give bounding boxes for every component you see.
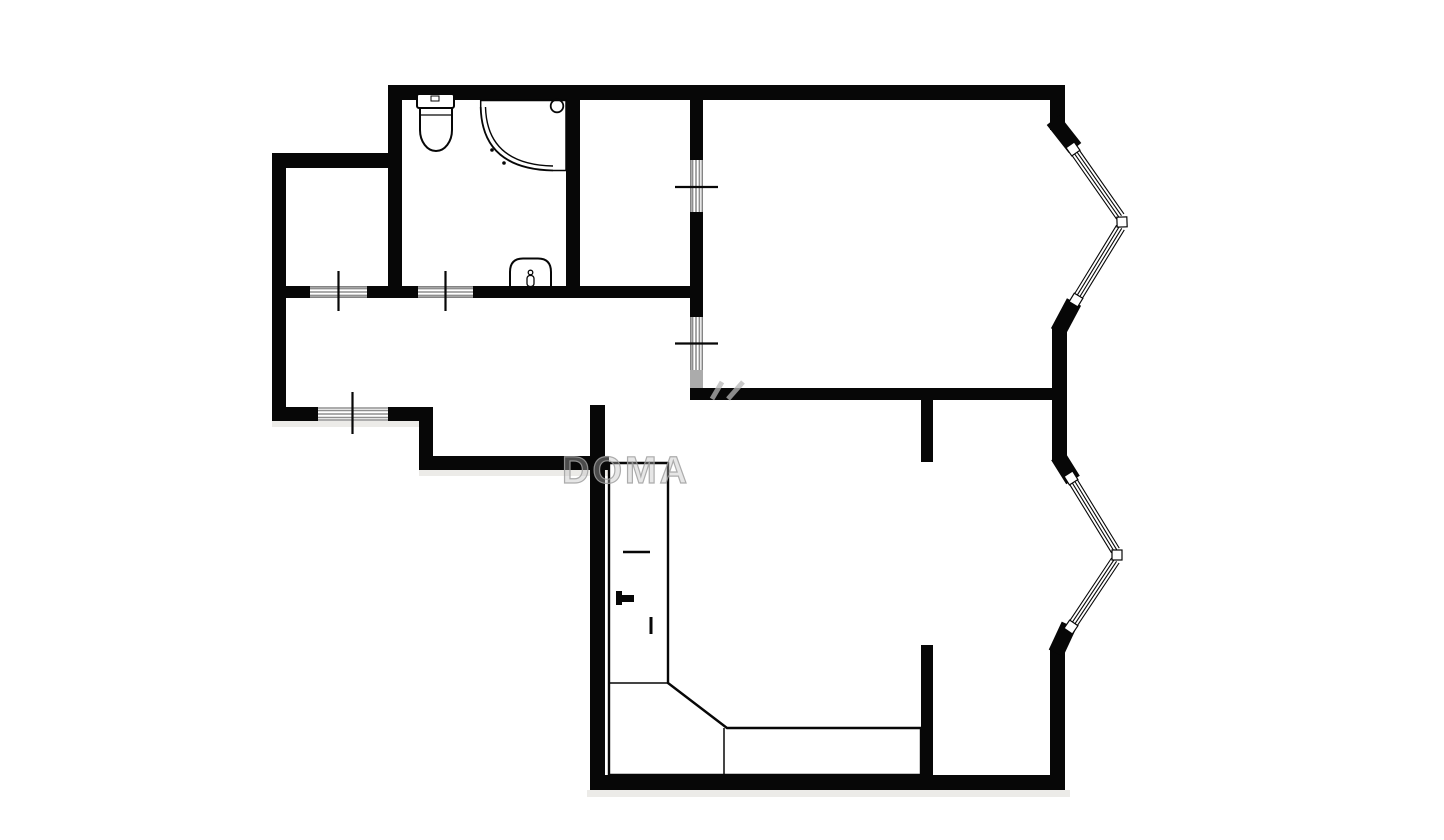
wall-mid-horizontal [367,286,418,298]
shower-door-inner-arc [486,107,554,166]
wall-mid-horizontal [473,286,703,298]
shower-door-outer-arc [481,107,553,171]
wall-bottom [590,775,1065,790]
washbasin-icon [510,259,551,288]
wall-bedroom-left [690,85,703,160]
bay-window-bottom [1064,471,1122,634]
wall-top [388,85,1065,100]
shower-drain [551,100,564,113]
shower-door-handle [502,161,506,165]
wall-living-partition-lower [921,645,933,785]
tap-spout [622,595,634,602]
wall-hall-bottom-upper [272,407,318,421]
wall-right-bottom [1050,648,1065,790]
wall-hall-bottom-lower [419,456,609,470]
sink-basin [510,259,551,288]
window-glazing [1069,558,1119,627]
wall-bedroom-living-divider [690,388,1062,400]
wall-faded-by-watermark [690,370,703,388]
tap-stem [616,591,622,605]
wall-bathroom-right [566,85,580,298]
door-opening-bedroom-lower [675,317,718,370]
door-opening-hall [318,392,388,434]
bay-window-top [1066,142,1127,307]
window-post [1112,550,1122,560]
shadow-hall-lower [419,470,611,476]
wall-bedroom-left [690,212,703,317]
shadow-bottom [587,790,1070,797]
counter-outline [609,463,921,775]
kitchen-counter [609,463,921,775]
window-glazing [1071,149,1124,219]
walls [272,85,1075,790]
wall-stub-bay1-bottom [1058,302,1074,332]
door-opening-bedroom-upper [675,160,718,212]
door-opening-bathroom [418,271,473,311]
door-opening-closet [310,271,367,311]
floor-plan-canvas: DOMA [0,0,1444,840]
window-post [1117,217,1127,227]
toilet-icon [417,94,454,151]
wall-bathroom-left [388,85,402,298]
window-glazing [1074,225,1125,300]
wall-living-partition-upper [921,388,933,462]
wall-mid-horizontal [272,286,310,298]
window-glazing [1069,478,1120,553]
wall-closet-top [272,153,402,168]
shower-door-handle [490,148,494,152]
floor-plan-drawing [0,0,1444,840]
shower-cabin-icon [480,100,567,171]
